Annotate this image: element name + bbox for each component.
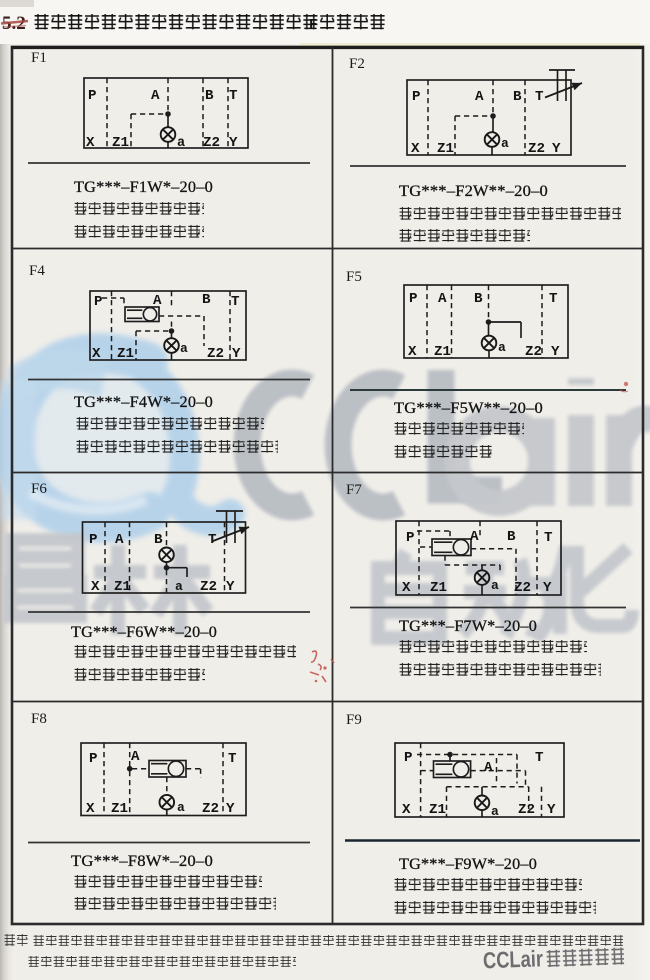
svg-text:T: T [544,530,553,546]
svg-text:A: A [438,291,447,307]
svg-text:P: P [89,532,98,548]
svg-text:X: X [86,801,95,817]
svg-text:Z1: Z1 [114,579,131,595]
svg-text:F7: F7 [346,482,362,498]
svg-text:A: A [131,749,140,765]
svg-text:a: a [491,578,499,593]
svg-text:F: F [309,17,317,33]
svg-text:T: T [231,294,240,310]
svg-text:TG***–F8W*–20–0: TG***–F8W*–20–0 [71,853,213,870]
svg-text:P: P [404,750,413,766]
svg-text:Z2: Z2 [202,801,219,817]
svg-text:T: T [535,750,544,766]
svg-text:Y: Y [552,141,561,157]
svg-text:Z1: Z1 [429,802,446,818]
svg-text:A: A [475,89,484,105]
svg-text:a: a [491,804,499,819]
svg-text:P: P [88,88,97,104]
svg-text:T: T [549,291,558,307]
svg-text:Z2: Z2 [518,802,535,818]
svg-text:X: X [402,802,411,818]
svg-text:a: a [501,136,509,151]
svg-text:TG***–F7W*–20–0: TG***–F7W*–20–0 [399,618,537,635]
svg-text:Z1: Z1 [430,580,447,596]
svg-text:Y: Y [232,346,241,362]
svg-text:Y: Y [226,579,235,595]
svg-text:Y: Y [551,344,560,360]
svg-text:Z2: Z2 [528,141,545,157]
svg-text:Z2: Z2 [207,346,224,362]
svg-text:A: A [484,760,493,776]
svg-text:P: P [94,294,103,310]
svg-text:Y: Y [547,802,556,818]
svg-text:B: B [202,292,211,308]
svg-text:A: A [151,88,160,104]
svg-text:TG***–F6W**–20–0: TG***–F6W**–20–0 [71,624,217,641]
svg-text:T: T [229,88,238,104]
svg-text:T: T [208,532,217,548]
svg-text:B: B [507,529,516,545]
svg-text:TG***–F9W*–20–0: TG***–F9W*–20–0 [399,856,537,873]
svg-text:X: X [408,344,417,360]
svg-text:Z2: Z2 [525,344,542,360]
svg-text:Z1: Z1 [437,141,454,157]
svg-text:a: a [177,800,185,815]
svg-text:TG***–F4W*–20–0: TG***–F4W*–20–0 [74,394,213,411]
svg-text:P: P [412,89,421,105]
svg-text:P: P [89,751,98,767]
svg-text:a: a [175,579,183,594]
svg-text:TG***–F5W**–20–0: TG***–F5W**–20–0 [394,400,543,417]
svg-text:X: X [91,579,100,595]
svg-text:B: B [205,88,214,104]
svg-text:P: P [409,291,418,307]
svg-text:P: P [406,530,415,546]
svg-text:F5: F5 [346,269,362,285]
svg-text:T: T [535,89,544,105]
svg-text:A: A [470,529,479,545]
svg-text:Z1: Z1 [117,346,134,362]
svg-text:Z1: Z1 [434,344,451,360]
svg-text:T: T [228,751,237,767]
svg-text:F4: F4 [29,263,45,279]
svg-text:Z2: Z2 [200,579,217,595]
svg-text:TG***–F2W**–20–0: TG***–F2W**–20–0 [399,183,548,200]
svg-text:Y: Y [229,135,238,151]
svg-text:A: A [153,293,162,309]
svg-text:a: a [498,340,506,355]
svg-text:F1: F1 [31,50,47,66]
svg-text:a: a [180,341,188,356]
svg-text:F8: F8 [31,711,47,727]
svg-text:X: X [86,135,95,151]
svg-text:F6: F6 [31,481,47,497]
svg-text:Z2: Z2 [514,580,531,596]
svg-text:Y: Y [543,580,552,596]
svg-text:CCLair: CCLair [483,945,544,973]
svg-text:A: A [115,532,124,548]
svg-text:B: B [513,89,522,105]
svg-text:a: a [177,136,185,151]
svg-text:X: X [411,141,420,157]
svg-text:X: X [402,580,411,596]
svg-text:Z2: Z2 [203,135,220,151]
svg-text:F2: F2 [349,56,365,72]
svg-text:B: B [154,532,163,548]
svg-text:B: B [474,291,483,307]
svg-text:Z1: Z1 [111,801,128,817]
svg-text:F9: F9 [346,712,362,728]
svg-text:Y: Y [226,801,235,817]
svg-text:Z1: Z1 [112,135,129,151]
svg-text:X: X [92,346,101,362]
svg-text:TG***–F1W*–20–0: TG***–F1W*–20–0 [74,179,213,196]
